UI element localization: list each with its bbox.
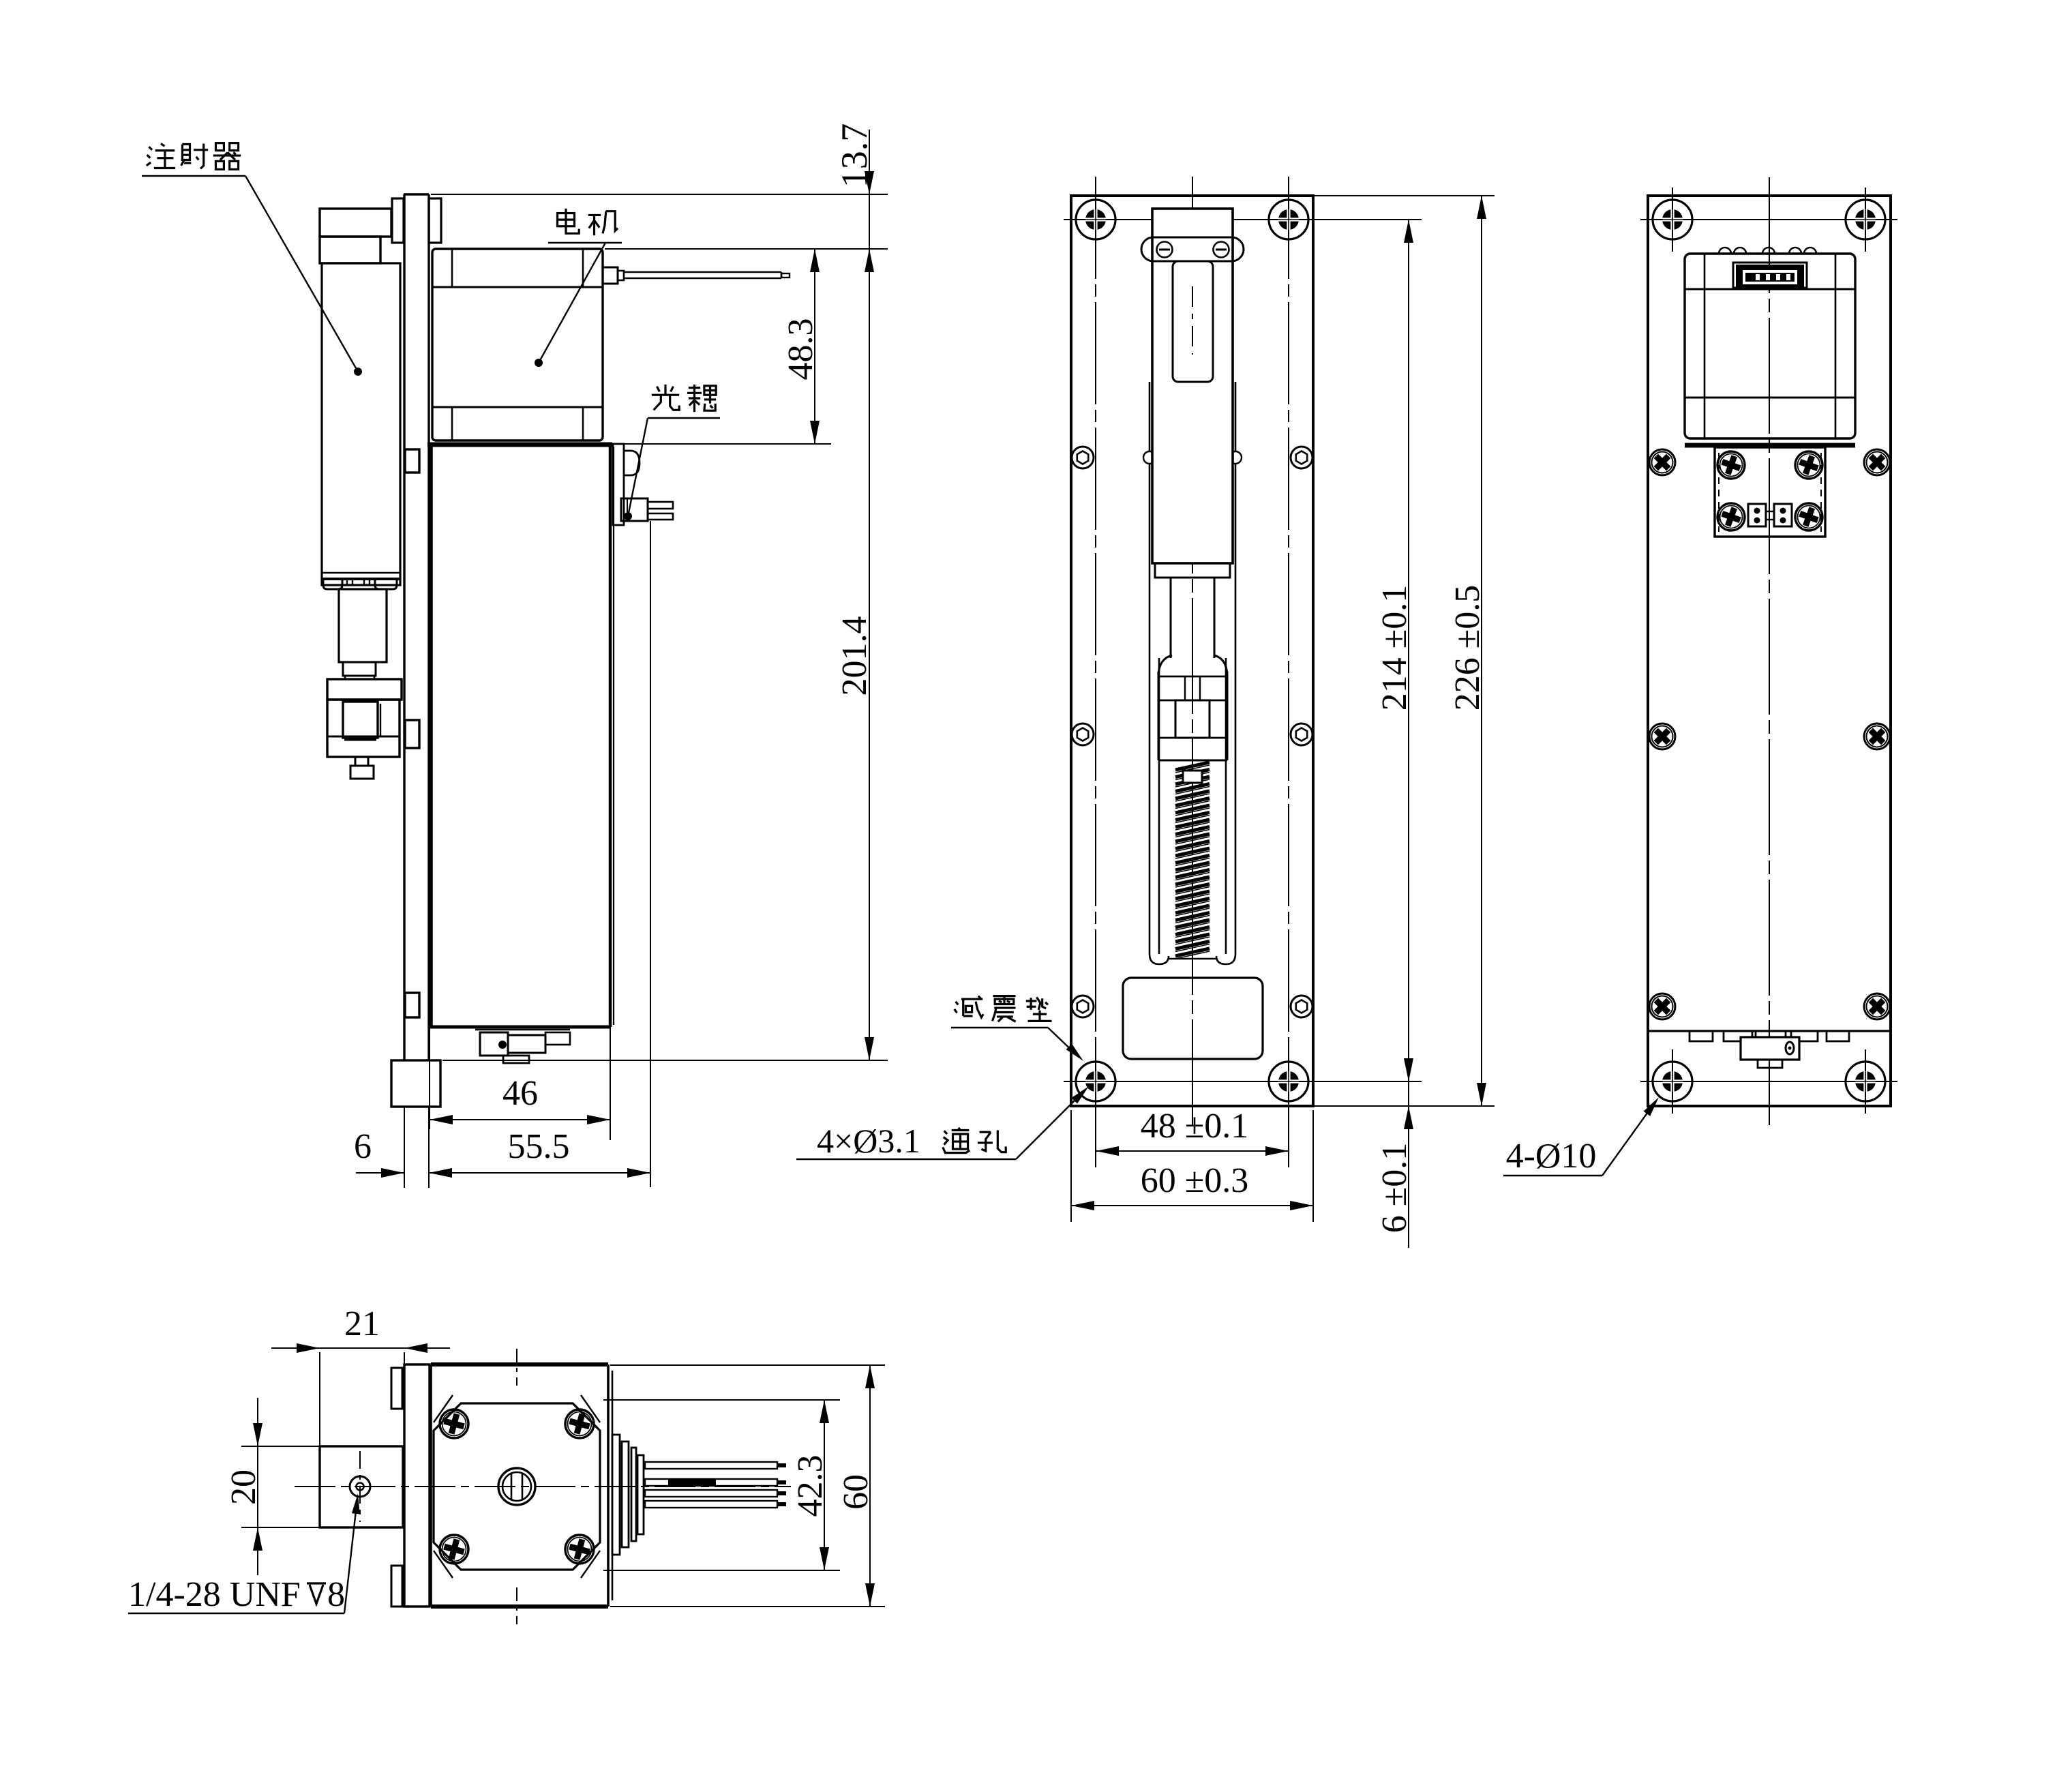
svg-text:48 ±0.1: 48 ±0.1 xyxy=(1141,1107,1249,1146)
svg-text:48.3: 48.3 xyxy=(781,318,820,380)
svg-text:6 ±0.1: 6 ±0.1 xyxy=(1375,1143,1414,1234)
svg-text:13.7: 13.7 xyxy=(834,123,875,188)
svg-text:60 ±0.3: 60 ±0.3 xyxy=(1141,1161,1249,1200)
svg-text:1/4-28 UNF: 1/4-28 UNF xyxy=(128,1575,301,1614)
svg-text:4-Ø10: 4-Ø10 xyxy=(1506,1137,1597,1176)
svg-text:214 ±0.1: 214 ±0.1 xyxy=(1375,585,1414,711)
svg-text:42.3: 42.3 xyxy=(791,1455,830,1517)
svg-text:20: 20 xyxy=(224,1469,263,1505)
svg-text:60: 60 xyxy=(837,1474,875,1510)
svg-text:4×Ø3.1: 4×Ø3.1 xyxy=(817,1122,920,1160)
svg-text:8: 8 xyxy=(327,1575,345,1614)
svg-text:21: 21 xyxy=(344,1304,380,1343)
svg-text:6: 6 xyxy=(354,1127,372,1166)
svg-text:55.5: 55.5 xyxy=(508,1127,570,1166)
svg-text:201.4: 201.4 xyxy=(835,616,874,696)
svg-text:226 ±0.5: 226 ±0.5 xyxy=(1448,585,1487,711)
svg-text:46: 46 xyxy=(502,1074,538,1113)
